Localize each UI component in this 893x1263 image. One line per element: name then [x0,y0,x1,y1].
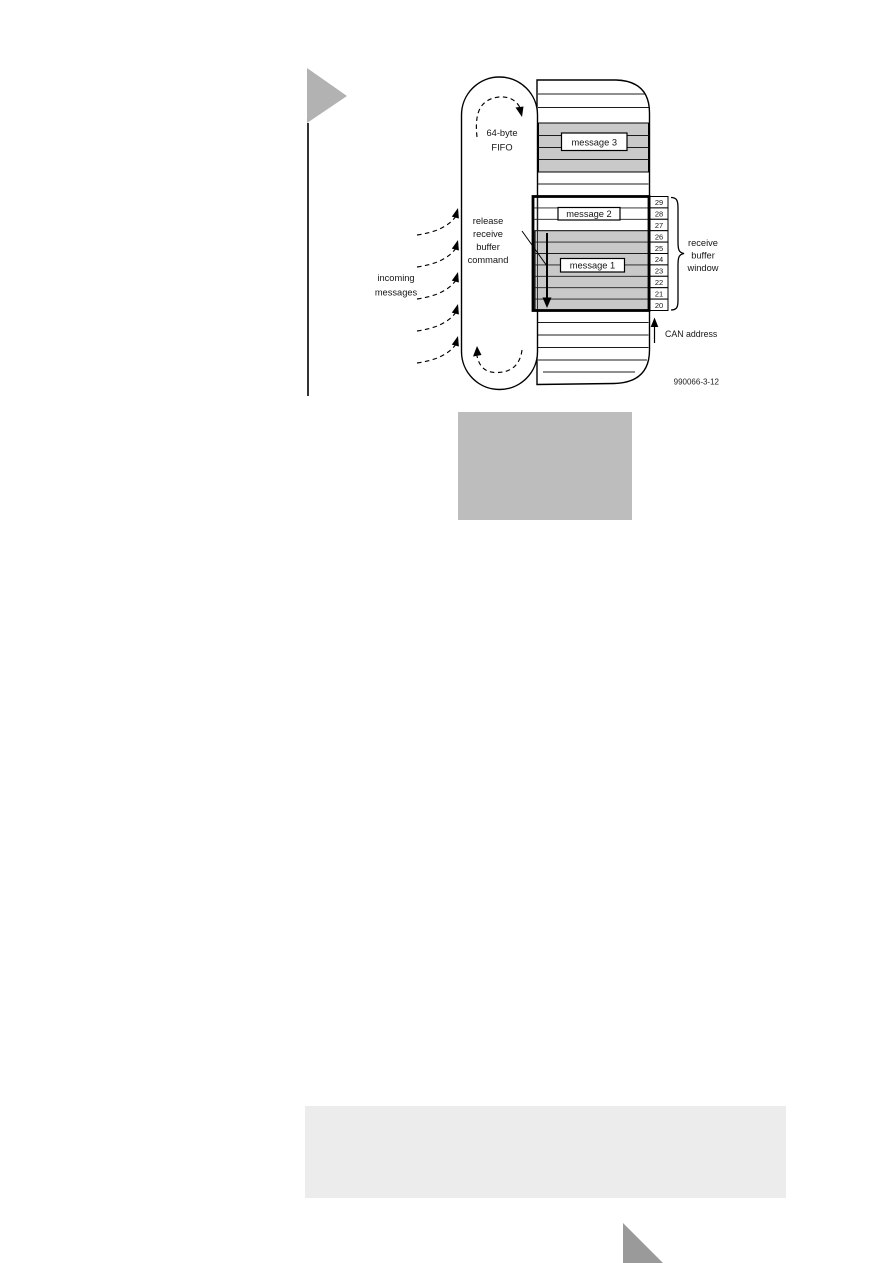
figure-code: 990066-3-12 [674,378,720,387]
address-label: 20 [655,301,663,310]
incoming-arrowhead-icon [452,336,459,347]
incoming-arrowhead-icon [452,304,459,315]
incoming-label-line1: incoming [377,273,414,283]
release-cmd-line2: receive [473,229,503,239]
fifo-size-label-line2: FIFO [491,143,512,153]
page-corner-triangle [623,1223,663,1263]
fifo-figure: message 3 64-byte FIFO [0,0,893,1263]
message-2-label: message 2 [566,209,611,219]
incoming-arrows [417,208,459,363]
address-label: 25 [655,244,663,253]
address-label: 27 [655,221,663,230]
address-label: 28 [655,210,663,219]
incoming-arrow-icon [417,248,457,268]
incoming-arrowhead-icon [452,208,459,219]
release-cmd-line1: release [473,216,504,226]
window-label-line1: receive [688,238,718,248]
incoming-arrowhead-icon [452,272,459,283]
can-address-arrowhead-icon [651,318,659,328]
incoming-arrow-icon [417,280,457,300]
release-cmd-line4: command [468,255,509,265]
address-label: 26 [655,232,663,241]
message-3-label: message 3 [572,138,617,148]
address-label: 22 [655,278,663,287]
address-label: 23 [655,267,663,276]
can-address-label: CAN address [665,329,718,339]
window-label-line3: window [686,263,718,273]
address-column: 29 28 27 26 25 24 23 22 21 20 [650,197,668,311]
incoming-arrow-icon [417,312,457,332]
incoming-label-line2: messages [375,288,418,298]
fifo-size-label-line1: 64-byte [486,128,517,138]
window-brace [671,198,684,311]
release-cmd-line3: buffer [476,242,500,252]
document-page: message 3 64-byte FIFO [0,0,893,1263]
message-1-label: message 1 [570,261,615,271]
window-label-line2: buffer [691,251,715,261]
section-marker-triangle [307,68,347,123]
address-label: 21 [655,289,663,298]
caption-placeholder-box [458,412,632,520]
incoming-arrowhead-icon [452,240,459,251]
incoming-arrow-icon [417,216,457,236]
address-label: 24 [655,255,663,264]
incoming-arrow-icon [417,344,457,364]
address-label: 29 [655,198,663,207]
footer-placeholder-box [305,1106,786,1198]
